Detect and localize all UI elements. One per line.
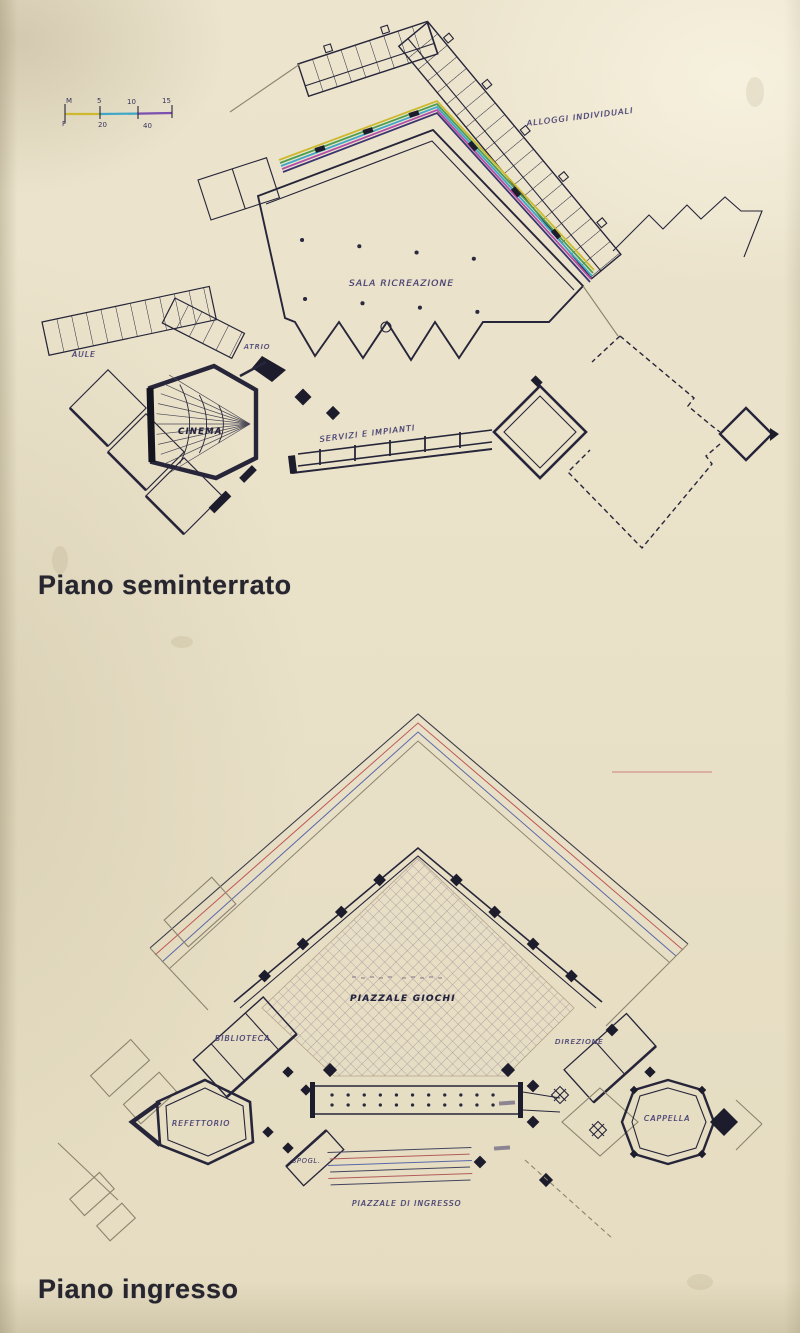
label-aule: AULE bbox=[71, 350, 96, 359]
alloggi-wing-left bbox=[295, 13, 438, 96]
label-alloggi: ALLOGGI INDIVIDUALI bbox=[525, 106, 634, 128]
scale-15: 15 bbox=[162, 97, 171, 105]
label-piazzale-giochi: PIAZZALE GIOCHI bbox=[350, 994, 456, 1004]
label-sala: SALA RICREAZIONE bbox=[349, 279, 454, 289]
scale-m: M bbox=[66, 97, 72, 105]
annex-upper-left bbox=[164, 877, 236, 947]
entrance-corridor bbox=[310, 1082, 523, 1118]
annex-rooms bbox=[198, 158, 279, 220]
scale-20: 20 bbox=[98, 121, 107, 129]
scale-40: 40 bbox=[143, 122, 152, 130]
cinema-seating-hatch bbox=[156, 375, 250, 473]
scale-bar: M 5 10 15 F 20 40 bbox=[62, 97, 172, 130]
caption-piano-seminterrato: Piano seminterrato bbox=[38, 572, 292, 599]
label-direzione: DIREZIONE bbox=[555, 1038, 604, 1046]
label-cappella: CAPPELLA bbox=[644, 1114, 690, 1123]
stepped-boundary bbox=[613, 197, 762, 257]
label-refettorio: REFETTORIO bbox=[172, 1119, 230, 1128]
dashed-extension bbox=[568, 336, 720, 548]
scale-f: F bbox=[62, 120, 66, 128]
scale-10: 10 bbox=[127, 98, 136, 106]
caption-piano-ingresso: Piano ingresso bbox=[38, 1276, 239, 1303]
direzione-block bbox=[564, 1014, 656, 1103]
plans-drawing: M 5 10 15 F 20 40 bbox=[0, 0, 800, 1333]
left-blocks bbox=[91, 1040, 177, 1124]
label-piazzale-ingresso: PIAZZALE DI INGRESSO bbox=[352, 1199, 462, 1208]
lower-plan: PIAZZALE GIOCHI BIBLIOTECA DIREZIONE REF… bbox=[58, 714, 762, 1241]
label-atrio: ATRIO bbox=[243, 343, 271, 351]
cinema-hall bbox=[150, 366, 256, 478]
label-spogliatoio: SPOGL. bbox=[292, 1157, 321, 1165]
label-biblioteca: BIBLIOTECA bbox=[215, 1034, 270, 1043]
piazzale-giochi-hatch bbox=[262, 858, 574, 1076]
upper-plan: M 5 10 15 F 20 40 bbox=[42, 13, 779, 548]
cappella-hall bbox=[622, 1080, 762, 1164]
entrance-steps bbox=[327, 1147, 472, 1185]
octagon-pavilion bbox=[494, 375, 586, 478]
bottom-left-blocks bbox=[58, 1143, 135, 1241]
scale-5: 5 bbox=[97, 97, 101, 105]
label-cinema: CINEMA bbox=[178, 427, 223, 437]
small-pavilion bbox=[720, 408, 772, 460]
small-pavilion-mark bbox=[770, 428, 779, 441]
atrium-court bbox=[494, 1080, 638, 1156]
